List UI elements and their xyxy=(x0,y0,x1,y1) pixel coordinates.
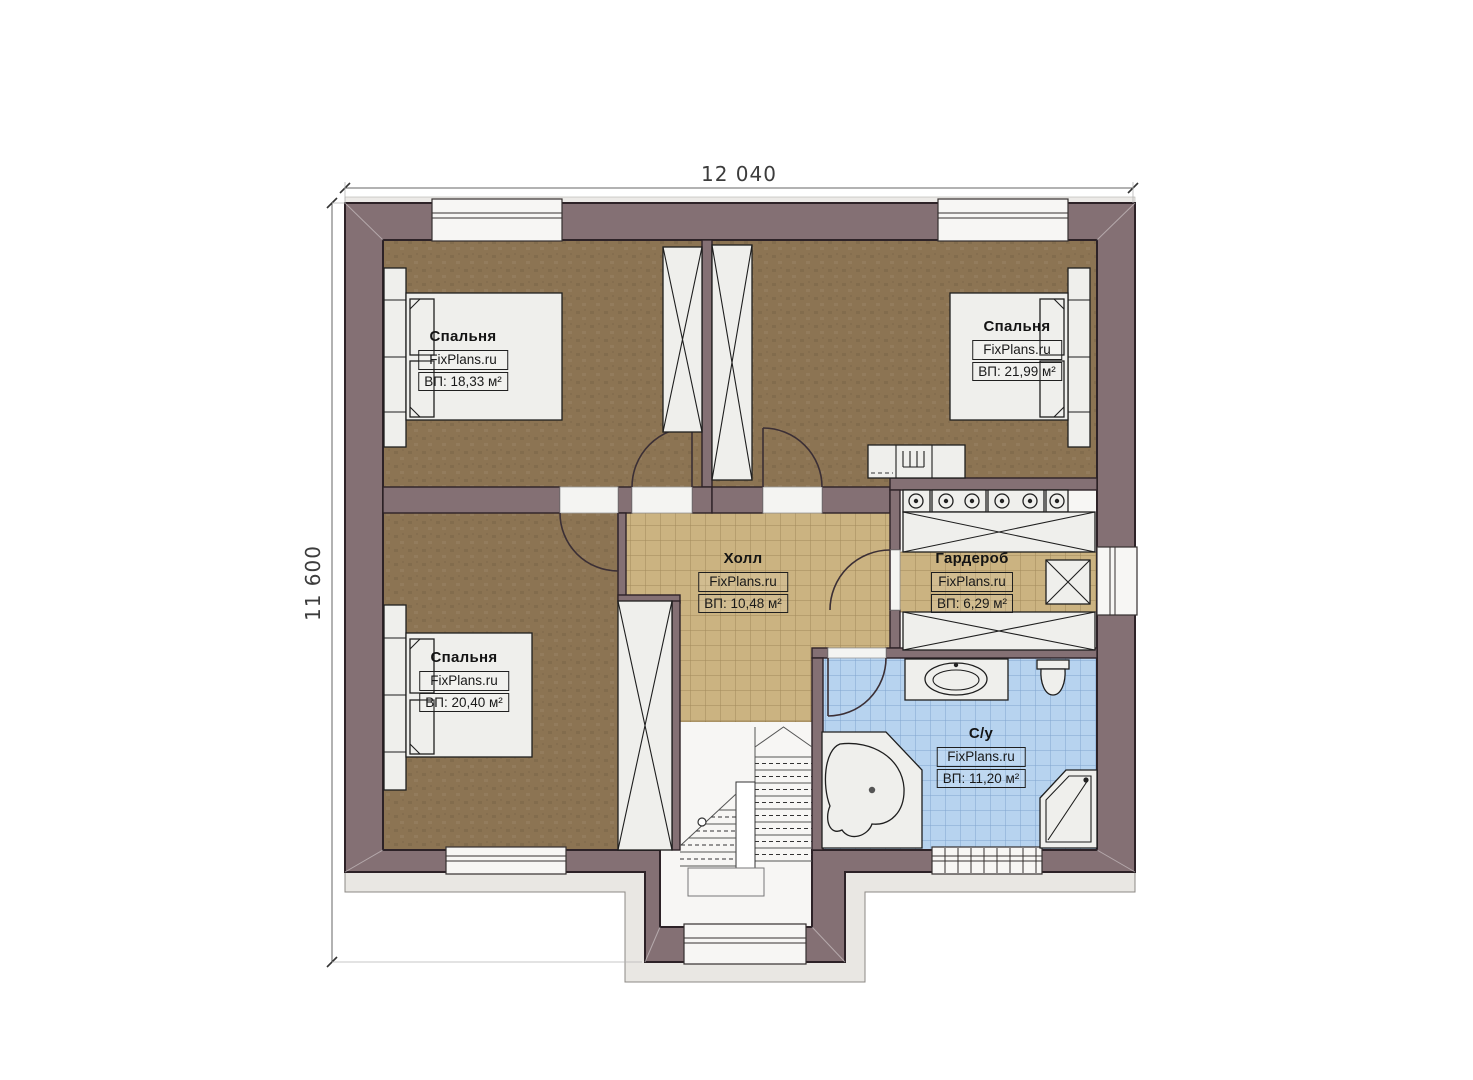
room-label-bedroom-top-right: Спальня FixPlans.ru ВП: 21,99 м² xyxy=(972,319,1062,381)
fixplans-watermark: FixPlans.ru xyxy=(419,671,509,691)
room-label-bathroom: С/у FixPlans.ru ВП: 11,20 м² xyxy=(937,726,1026,788)
wardrobe-box-icon xyxy=(1046,560,1090,604)
drawer-unit-icon xyxy=(903,490,1068,512)
dimension-height-label: 11 600 xyxy=(301,545,325,621)
room-area: ВП: 21,99 м² xyxy=(972,362,1062,382)
wardrobe-cabinet-left-icon xyxy=(663,247,702,432)
fixplans-watermark: FixPlans.ru xyxy=(698,572,788,592)
room-area: ВП: 6,29 м² xyxy=(931,594,1013,614)
wardrobe-niche-icon xyxy=(618,601,672,850)
room-label-bedroom-bottom-left: Спальня FixPlans.ru ВП: 20,40 м² xyxy=(419,650,509,712)
room-name: С/у xyxy=(937,726,1026,741)
window-bedroom-top-left xyxy=(432,199,562,241)
room-area: ВП: 10,48 м² xyxy=(698,594,788,614)
wardrobe-cabinet-right-icon xyxy=(712,245,752,480)
room-name: Спальня xyxy=(419,650,509,665)
room-label-bedroom-top-left: Спальня FixPlans.ru ВП: 18,33 м² xyxy=(418,329,508,391)
room-label-wardrobe: Гардероб FixPlans.ru ВП: 6,29 м² xyxy=(931,551,1013,613)
room-area: ВП: 11,20 м² xyxy=(937,769,1026,789)
room-name: Спальня xyxy=(972,319,1062,334)
wardrobe-closet-top-icon xyxy=(903,512,1095,552)
fixplans-watermark: FixPlans.ru xyxy=(931,572,1013,592)
window-bedroom-top-right xyxy=(938,199,1068,241)
floor-plan-drawing: 12 040 11 600 xyxy=(0,0,1473,1080)
window-wardrobe xyxy=(1097,547,1137,615)
wardrobe-closet-bottom-icon xyxy=(903,612,1095,650)
room-label-hall: Холл FixPlans.ru ВП: 10,48 м² xyxy=(698,551,788,613)
room-name: Гардероб xyxy=(931,551,1013,566)
vanity-sink-icon xyxy=(905,659,1008,700)
room-name: Спальня xyxy=(418,329,508,344)
dimension-width-label: 12 040 xyxy=(701,162,777,186)
window-bathroom xyxy=(932,847,1042,874)
fixplans-watermark: FixPlans.ru xyxy=(972,340,1062,360)
floor-plan-page: 12 040 11 600 Спальня FixPlans.ru ВП: 18… xyxy=(0,0,1473,1080)
fixplans-watermark: FixPlans.ru xyxy=(937,747,1026,767)
room-area: ВП: 18,33 м² xyxy=(418,372,508,392)
room-area: ВП: 20,40 м² xyxy=(419,693,509,713)
fixplans-watermark: FixPlans.ru xyxy=(418,350,508,370)
room-name: Холл xyxy=(698,551,788,566)
window-bedroom-bottom xyxy=(446,847,566,874)
window-stair-bay xyxy=(684,924,806,964)
dresser-icon xyxy=(868,445,965,478)
